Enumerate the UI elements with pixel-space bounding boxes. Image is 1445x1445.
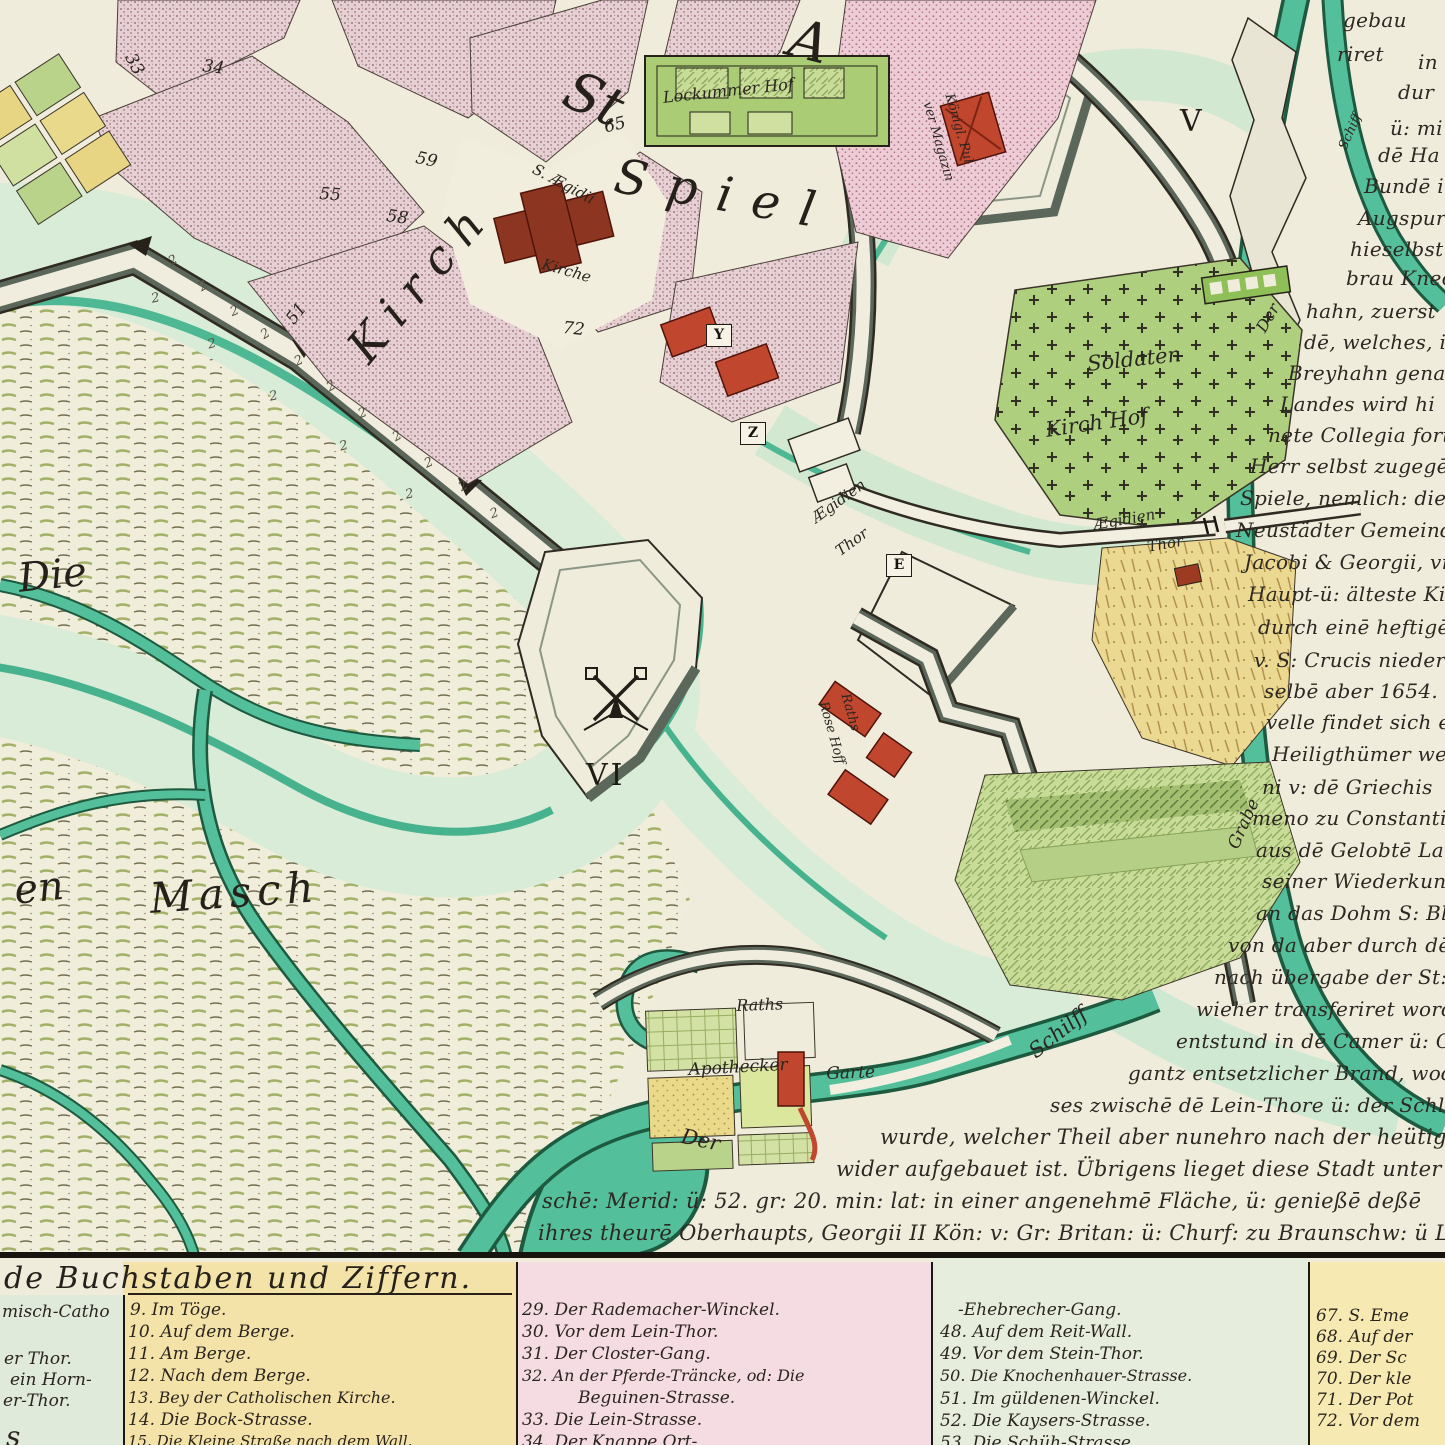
legend-divider <box>123 1295 125 1445</box>
legend-panel-4 <box>931 1258 1308 1445</box>
legend-divider <box>516 1262 518 1445</box>
apothecker-building <box>778 1052 804 1106</box>
legend-divider <box>931 1262 933 1445</box>
legend-divider <box>1308 1262 1310 1445</box>
map-artwork <box>0 0 1445 1258</box>
legend-panel-3 <box>516 1262 931 1445</box>
legend-panel-1 <box>0 1295 123 1445</box>
legend-panel-5 <box>1308 1262 1445 1445</box>
legend-title: de Buchstaben und Ziffern. <box>4 1261 472 1296</box>
lockummer-hof-complex <box>645 56 889 146</box>
antique-city-map: StAKirchSpielS. ÆgidiiKircheLockummer Ho… <box>0 0 1445 1445</box>
